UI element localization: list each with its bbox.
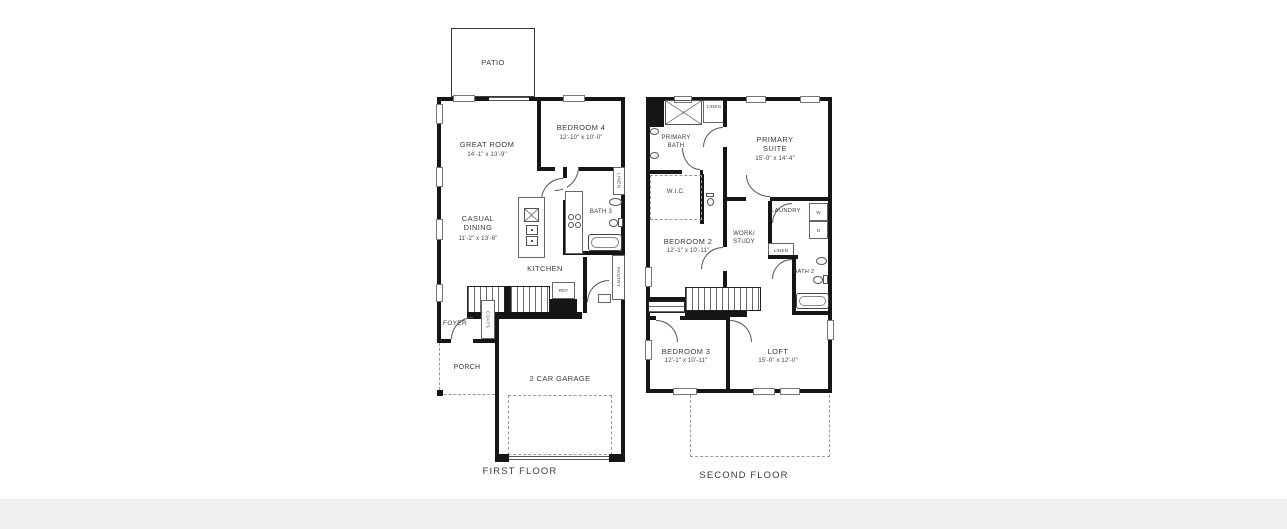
window xyxy=(746,96,766,103)
window xyxy=(753,388,775,395)
toilet-icon xyxy=(813,276,823,284)
window xyxy=(645,340,652,360)
sink-icon xyxy=(816,257,827,265)
door-swing xyxy=(772,259,792,279)
bathtub-icon xyxy=(796,293,829,309)
footprint-outline xyxy=(690,395,830,457)
door-opening xyxy=(723,127,727,147)
porch-column xyxy=(437,390,443,396)
door-opening xyxy=(682,170,700,174)
coats-closet: COATS xyxy=(481,300,495,339)
patio-label: PATIO xyxy=(451,58,535,67)
bedroom4-dims: 12'-10" x 10'-0" xyxy=(539,134,623,141)
bedroom3-dims: 12'-1" x 10'-11" xyxy=(652,357,720,364)
dryer: D xyxy=(809,221,828,239)
casual-dining-label: CASUAL DINING xyxy=(454,214,502,233)
sliding-door xyxy=(489,97,529,101)
dryer-label: D xyxy=(810,228,827,233)
first-floor-title: FIRST FLOOR xyxy=(470,466,570,477)
linen-closet: LINEN xyxy=(613,167,625,195)
shower-icon xyxy=(665,100,702,125)
window xyxy=(563,95,585,102)
bedroom2-dims: 12'-1" x 10'-11" xyxy=(654,247,722,254)
sink-icon xyxy=(650,128,659,135)
window xyxy=(436,219,443,240)
work-study-label: WORK/ STUDY xyxy=(727,231,761,246)
wall xyxy=(583,257,587,313)
garage-door-outline xyxy=(508,395,612,455)
wall xyxy=(723,97,727,197)
wall xyxy=(505,286,510,314)
door-swing xyxy=(703,127,723,147)
island-sink-icon xyxy=(524,208,539,222)
wall xyxy=(828,97,832,393)
bedroom3-label: BEDROOM 3 xyxy=(652,347,720,356)
kitchen-counter xyxy=(565,191,583,254)
casual-dining-dims: 11'-2" x 13'-6" xyxy=(454,235,502,242)
dishwasher-icon xyxy=(526,225,538,235)
washer: W xyxy=(809,203,828,221)
cooktop-burner-icon xyxy=(568,214,574,220)
ref-label: REF xyxy=(553,288,574,293)
toilet-icon xyxy=(707,198,714,206)
bottom-band xyxy=(0,499,1287,529)
stairs xyxy=(685,287,761,311)
refrigerator: REF xyxy=(552,282,575,299)
window xyxy=(800,96,820,103)
bedroom4-label: BEDROOM 4 xyxy=(539,123,623,132)
cooktop-burner-icon xyxy=(575,214,581,220)
linen-label: LINEN xyxy=(704,104,724,109)
dishwasher-icon xyxy=(526,236,538,246)
bath3-label: BATH 3 xyxy=(583,209,619,217)
laundry-label: LAUNDRY xyxy=(764,208,808,215)
cooktop-burner-icon xyxy=(568,222,574,228)
linen-label: LINEN xyxy=(617,173,622,188)
door-opening xyxy=(723,247,727,271)
door-swing xyxy=(746,175,770,197)
door-opening xyxy=(746,197,770,201)
window xyxy=(436,167,443,187)
window xyxy=(453,95,475,102)
great-room-label: GREAT ROOM xyxy=(447,140,527,149)
wall xyxy=(495,454,509,462)
window xyxy=(436,284,443,302)
garage-label: 2 CAR GARAGE xyxy=(500,374,620,383)
washer-label: W xyxy=(810,210,827,215)
toilet-icon xyxy=(823,275,828,284)
second-floor-title: SECOND FLOOR xyxy=(684,470,804,481)
kitchen-island xyxy=(518,197,545,258)
loft-label: LOFT xyxy=(748,347,808,356)
wall xyxy=(723,197,830,201)
sink-icon xyxy=(650,152,659,159)
pantry-label: PANTRY xyxy=(616,267,621,287)
loft-dims: 15'-0" x 12'-0" xyxy=(748,357,808,364)
window xyxy=(673,388,697,395)
floor-plan-canvas: PATIO BEDROOM 4 12'-10" x 10'-0" LINEN G… xyxy=(0,0,1287,529)
door-swing xyxy=(587,280,609,302)
window xyxy=(436,104,443,124)
wall xyxy=(495,312,499,460)
window xyxy=(645,267,652,287)
porch-label: PORCH xyxy=(439,364,495,373)
stair-landing xyxy=(648,301,685,313)
garage-opening xyxy=(509,456,609,460)
linen-label: LINEN xyxy=(769,248,793,253)
great-room-dims: 14'-1" x 13'-9" xyxy=(447,151,527,158)
coats-label: COATS xyxy=(486,311,491,328)
window xyxy=(827,320,834,340)
linen-closet: LINEN xyxy=(703,100,725,123)
stairs xyxy=(510,286,550,314)
kitchen-label: KITCHEN xyxy=(515,264,575,273)
wall xyxy=(609,454,625,462)
door-swing xyxy=(730,320,752,342)
wic-outline xyxy=(650,175,702,220)
second-floor-plan: LINEN PRIMARY BATH W.I.C. PRIMARY SUITE … xyxy=(646,97,834,497)
door-swing xyxy=(656,320,678,342)
wall xyxy=(792,311,832,315)
bathtub-icon xyxy=(588,234,622,251)
door-swing xyxy=(682,148,700,170)
first-floor-plan: PATIO BEDROOM 4 12'-10" x 10'-0" LINEN G… xyxy=(437,28,629,488)
pantry-closet: PANTRY xyxy=(612,255,625,300)
cooktop-burner-icon xyxy=(575,222,581,228)
sink-icon xyxy=(609,198,622,206)
primary-suite-label: PRIMARY SUITE xyxy=(752,135,798,154)
window xyxy=(780,388,800,395)
primary-suite-dims: 15'-0" x 14'-4" xyxy=(752,155,798,162)
toilet-icon xyxy=(609,219,618,227)
wic-label: W.I.C. xyxy=(650,189,702,197)
wall xyxy=(537,167,625,171)
toilet-icon xyxy=(706,193,714,197)
wall xyxy=(550,299,577,312)
bedroom2-label: BEDROOM 2 xyxy=(654,237,722,246)
bath2-label: BATH 2 xyxy=(793,269,815,276)
toilet-icon xyxy=(618,218,623,227)
